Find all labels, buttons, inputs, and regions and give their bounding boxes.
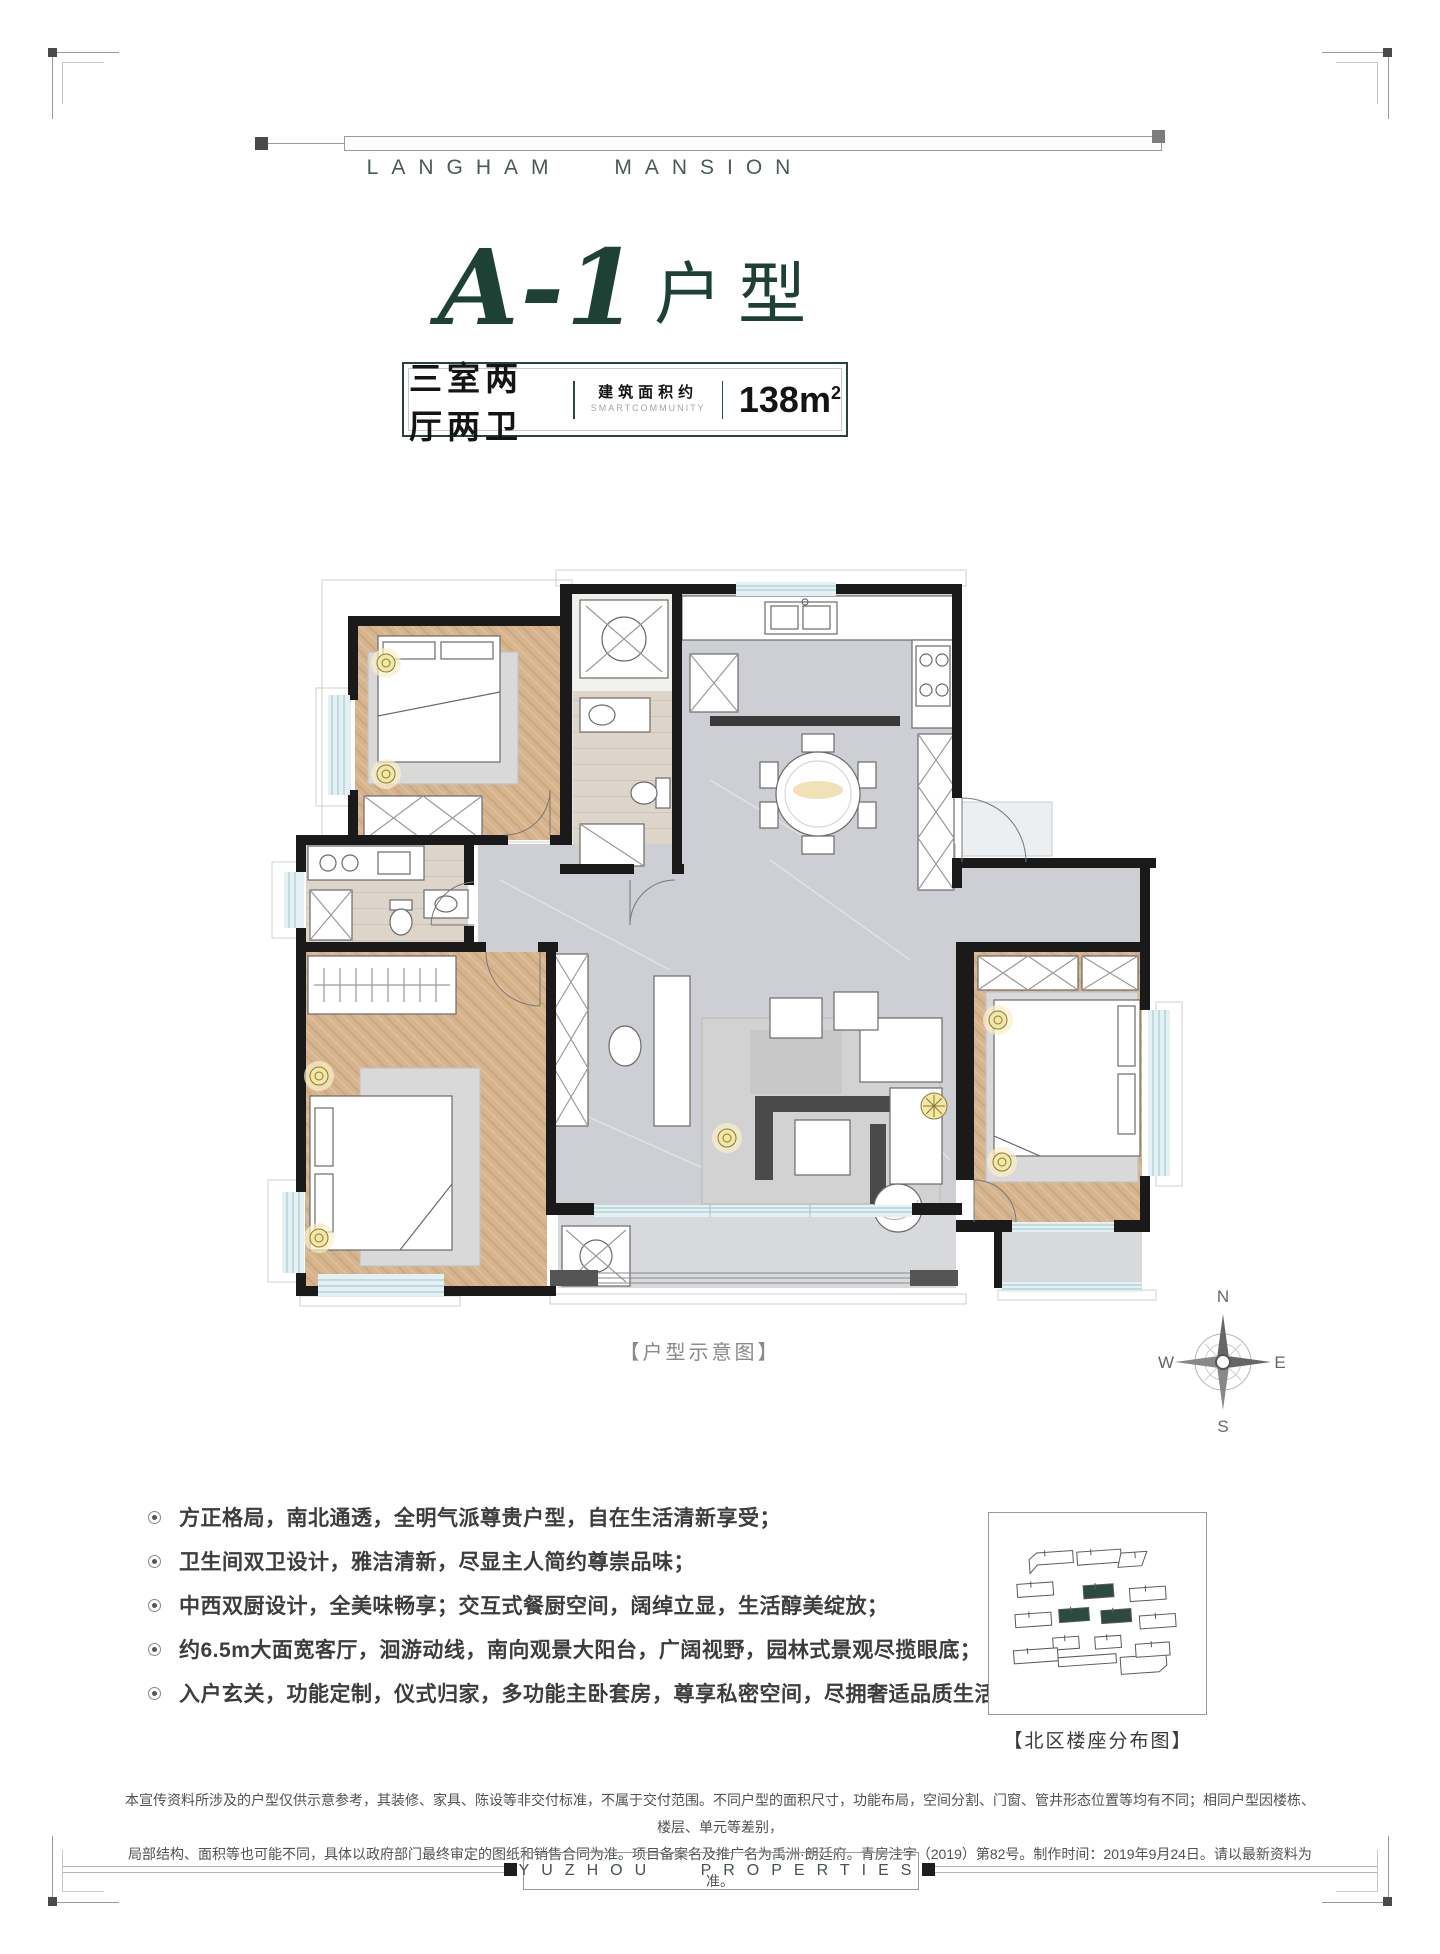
corner-ornament-top-right — [1322, 52, 1388, 118]
floor-balcony2 — [998, 1230, 1142, 1286]
compass: N S W E — [1158, 1286, 1288, 1436]
pendant-light — [921, 1093, 947, 1119]
window-kitchen — [736, 582, 836, 596]
unit-title: A-1户型 — [180, 226, 1080, 349]
bullet-icon — [148, 1687, 161, 1700]
footer-rule-left-bottom — [62, 1872, 510, 1873]
footer-box: YUZHOU PROPERTIES — [523, 1852, 919, 1890]
spec-box: 三室两厅两卫 建筑面积约 SMARTCOMMUNITY 138m2 — [402, 362, 848, 437]
coffee-table — [795, 1120, 850, 1175]
west-kitchen-counter — [308, 846, 424, 880]
bullet-icon — [148, 1599, 161, 1612]
top-bar-outline — [344, 136, 1162, 151]
top-bar-square-right — [1152, 130, 1165, 143]
footer-square-left — [504, 1863, 517, 1876]
kitchen-counter-right — [912, 640, 954, 728]
tv-console — [654, 976, 690, 1126]
area-label: 建筑面积约 — [591, 385, 706, 402]
bullet-icon — [148, 1555, 161, 1568]
floor-plan-svg — [250, 540, 1190, 1310]
disclaimer-line1: 本宣传资料所涉及的户型仅供示意参考，其装修、家具、陈设等非交付标准，不属于交付范… — [120, 1787, 1320, 1841]
top-bar-square-left — [255, 137, 268, 150]
pass-through-counter — [710, 716, 900, 726]
footer-rule-right-bottom — [930, 1872, 1378, 1873]
armchair-1 — [770, 998, 822, 1038]
bullet-icon — [148, 1511, 161, 1524]
footer-wordmark: YUZHOU PROPERTIES — [519, 1862, 924, 1880]
unit-type-label: 户型 — [654, 256, 822, 335]
window-master-left — [282, 1192, 304, 1273]
armchair-2 — [834, 992, 878, 1030]
feature-item: 卫生间双卫设计，雅洁清新，尽显主人简约尊崇品味； — [148, 1549, 978, 1573]
window-bedroom3-bay — [1148, 1010, 1170, 1176]
wardrobe-bedroom3 — [978, 956, 1078, 990]
window-master-bay — [318, 1274, 444, 1296]
sitemap-svg — [989, 1513, 1204, 1712]
sitemap-box — [988, 1512, 1207, 1715]
area-value: 138m2 — [739, 379, 841, 421]
compass-n: N — [1217, 1287, 1229, 1306]
plan-caption: 【户型示意图】 — [400, 1336, 1000, 1365]
bullet-icon — [148, 1643, 161, 1656]
footer-rule-right-top — [930, 1866, 1378, 1867]
entry-porch — [962, 802, 1052, 856]
top-bar-connector — [268, 143, 344, 144]
compass-icon: N S W E — [1158, 1286, 1288, 1436]
brochure-page: LANGHAM MANSION A-1户型 三室两厅两卫 建筑面积约 SMART… — [0, 0, 1440, 1954]
spec-divider-1 — [573, 381, 574, 419]
sitemap-caption: 【北区楼座分布图】 — [963, 1726, 1233, 1753]
corner-ornament-top-left — [52, 52, 118, 118]
spec-divider-2 — [722, 381, 723, 419]
floor-entry-corridor — [956, 867, 1144, 945]
window-balcony-slider — [594, 1205, 912, 1217]
window-bath1 — [284, 872, 304, 928]
area-label-block: 建筑面积约 SMARTCOMMUNITY — [591, 385, 706, 413]
floor-plan — [250, 540, 1190, 1310]
footer-square-right — [922, 1863, 935, 1876]
area-sublabel: SMARTCOMMUNITY — [591, 404, 706, 414]
spec-box-inner: 三室两厅两卫 建筑面积约 SMARTCOMMUNITY 138m2 — [408, 368, 842, 431]
corner-ornament-bottom-right — [1322, 1836, 1388, 1902]
toilet-bath2 — [631, 782, 657, 804]
feature-item: 入户玄关，功能定制，仪式归家，多功能主卧套房，尊享私密空间，尽拥奢适品质生活。 — [148, 1681, 978, 1705]
feature-item: 方正格局，南北通透，全明气派尊贵户型，自在生活清新享受； — [148, 1505, 978, 1529]
brand-wordmark: LANGHAM MANSION — [230, 156, 940, 180]
feature-list: 方正格局，南北通透，全明气派尊贵户型，自在生活清新享受； 卫生间双卫设计，雅洁清… — [148, 1505, 978, 1725]
compass-s: S — [1217, 1417, 1228, 1436]
corner-ornament-bottom-left — [52, 1836, 118, 1902]
vanity-bath1 — [424, 890, 468, 918]
feature-item: 约6.5m大面宽客厅，洄游动线，南向观景大阳台，广阔视野，园林式景观尽揽眼底； — [148, 1637, 978, 1661]
accent-chair — [609, 1026, 641, 1066]
wardrobe-bedroom2 — [364, 796, 482, 840]
compass-e: E — [1274, 1353, 1285, 1372]
compass-w: W — [1158, 1353, 1174, 1372]
toilet-bath1 — [390, 909, 412, 935]
feature-item: 中西双厨设计，全美味畅享；交互式餐厨空间，阔绰立显，生活醇美绽放； — [148, 1593, 978, 1617]
unit-code: A-1 — [438, 226, 640, 349]
room-count-label: 三室两厅两卫 — [409, 352, 557, 448]
window-bedroom2-bay — [328, 695, 350, 795]
footer-rule-left-top — [62, 1866, 510, 1867]
